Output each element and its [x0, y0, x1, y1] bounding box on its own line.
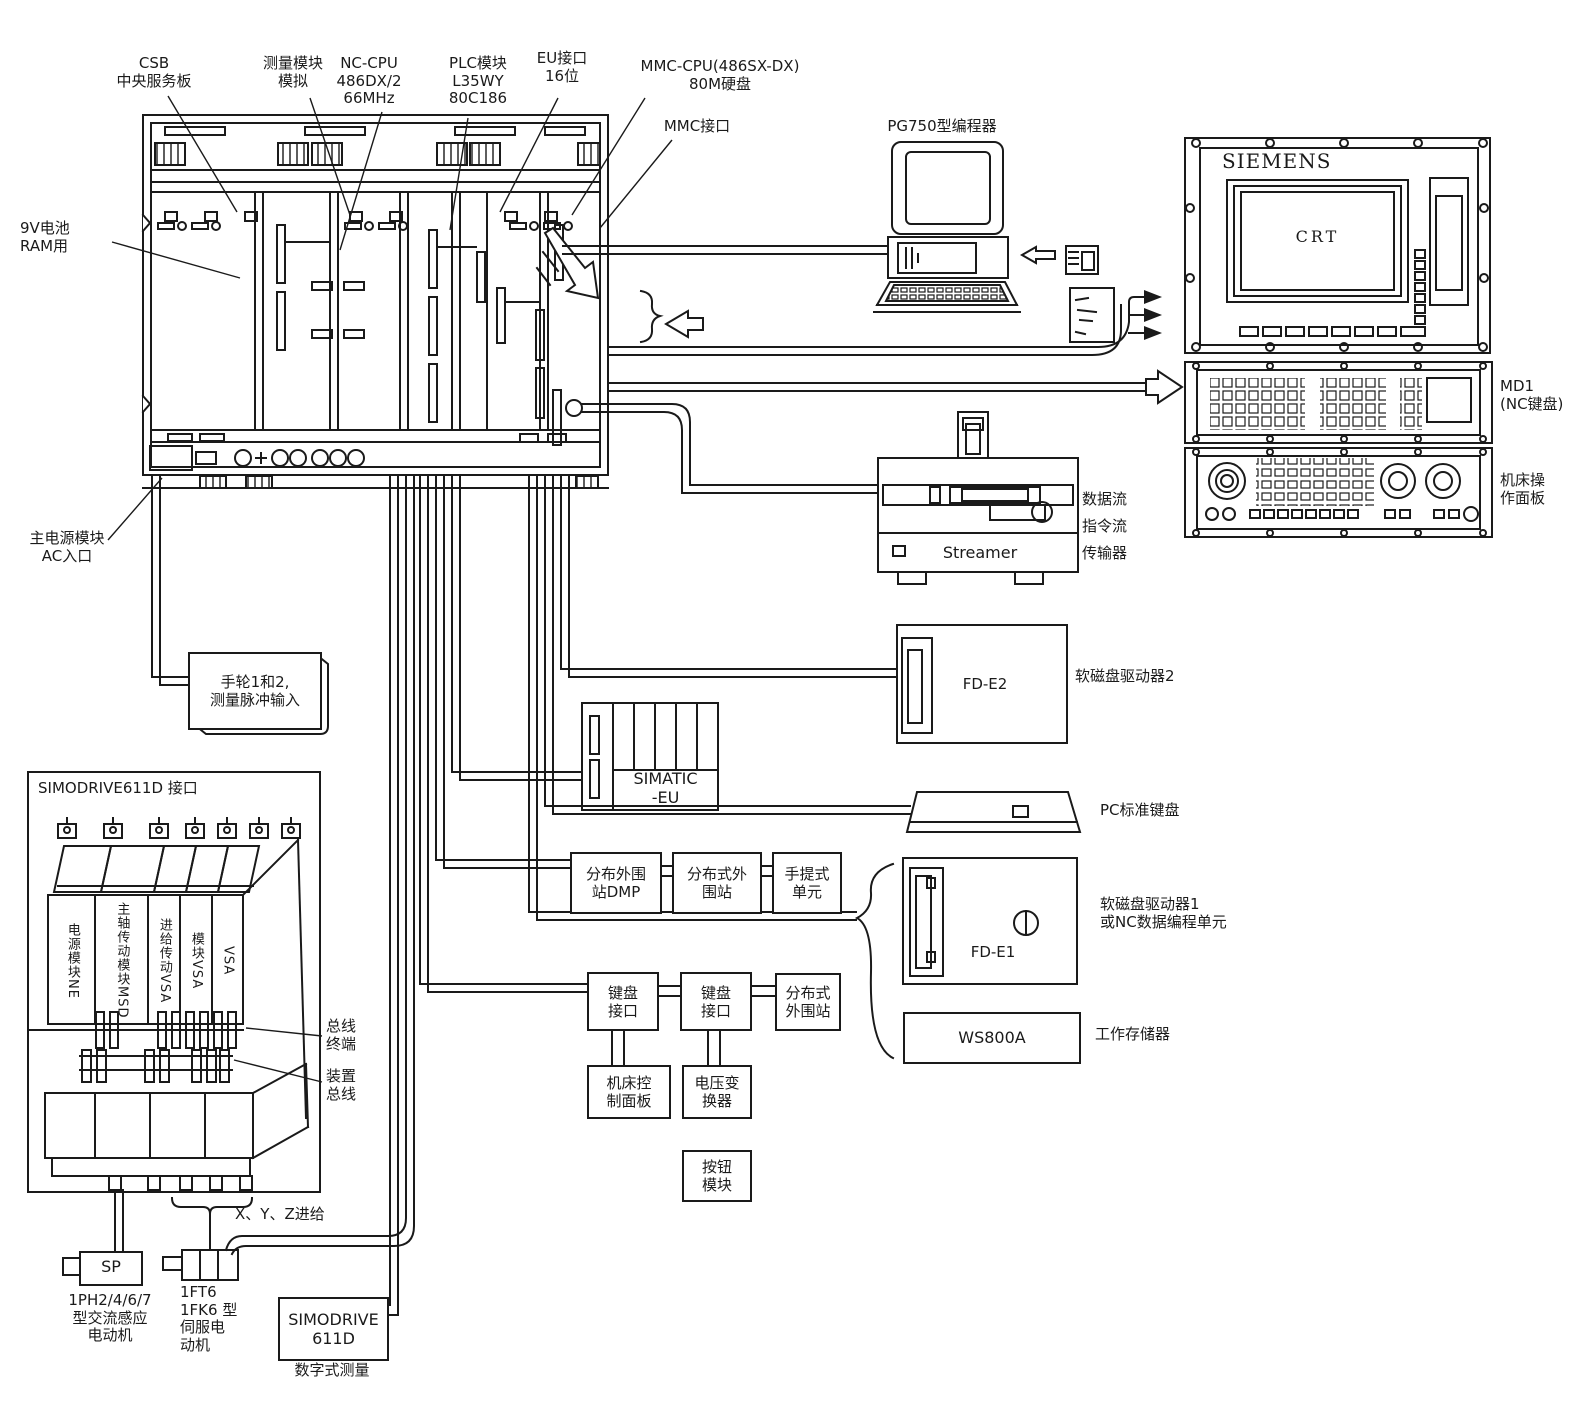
label-spindle-module-msd: 主轴传动模块MSD	[98, 900, 145, 1020]
callout-plc-module: PLC模块 L35WY 80C186	[436, 55, 520, 108]
right-arrow-icon	[1144, 326, 1162, 340]
box-dist-station-2: 分布式 外围站	[775, 973, 841, 1031]
box-machine-control-panel: 机床控 制面板	[587, 1065, 671, 1119]
callout-battery: 9V电池 RAM用	[20, 220, 100, 255]
box-keyboard-interface-1: 键盘 接口	[587, 972, 659, 1031]
label-feed-module-vsa: 进给传动VSA	[151, 900, 177, 1022]
label-simodrive-interface: SIMODRIVE611D 接口	[38, 780, 258, 798]
callout-eu-interface: EU接口 16位	[524, 50, 600, 85]
label-power-module-ne: 电源模块NE	[52, 905, 92, 1017]
pc-keyboard-device	[907, 792, 1080, 832]
callout-csb: CSB 中央服务板	[112, 55, 196, 90]
label-module-vsa: 模块VSA	[183, 900, 209, 1022]
pg750-computer	[874, 142, 1020, 312]
label-bus-terminal: 总线 终端	[326, 1018, 372, 1053]
right-arrow-icon	[1144, 308, 1162, 322]
box-button-module: 按钮 模块	[682, 1150, 752, 1202]
md1-keyboard	[1185, 362, 1492, 443]
label-xyz-feed: X、Y、Z进给	[235, 1206, 365, 1224]
label-fd-e2: FD-E2	[950, 676, 1020, 694]
label-device-bus: 装置 总线	[326, 1068, 372, 1103]
machine-operator-panel	[1185, 448, 1492, 537]
label-floppy-drive1: 软磁盘驱动器1 或NC数据编程单元	[1100, 896, 1275, 931]
open-left-arrow-icon	[1022, 247, 1055, 263]
box-simodrive-611d: SIMODRIVE 611D	[278, 1297, 389, 1361]
label-md1: MD1 (NC键盘)	[1500, 378, 1592, 413]
label-fd-e1: FD-E1	[958, 944, 1028, 962]
label-digital-measure: 数字式测量	[272, 1362, 392, 1380]
floppy-icon	[1066, 246, 1098, 274]
callout-mmc-cpu: MMC-CPU(486SX-DX) 80M硬盘	[615, 58, 825, 93]
open-left-arrow-icon	[666, 311, 703, 337]
label-floppy-drive2: 软磁盘驱动器2	[1075, 668, 1215, 686]
crt-screen-label: CRT	[1280, 228, 1355, 247]
box-dist-station: 分布式外 围站	[672, 852, 762, 914]
open-right-arrow-icon	[1146, 371, 1182, 403]
label-pc-keyboard: PC标准键盘	[1100, 802, 1230, 820]
brand-siemens: SIEMENS	[1222, 150, 1352, 174]
box-voltage-converter: 电压变 换器	[682, 1065, 752, 1119]
label-vsa: VSA	[215, 900, 240, 1022]
label-simatic-eu: SIMATIC -EU	[615, 770, 716, 808]
label-streamer: Streamer	[938, 544, 1022, 563]
label-data-flow: 数据流 指令流 传输器	[1082, 486, 1146, 567]
icon-arrows	[641, 246, 1182, 403]
callout-nc-cpu: NC-CPU 486DX/2 66MHz	[325, 55, 413, 108]
callout-mmc-interface: MMC接口	[652, 118, 742, 136]
label-pg750: PG750型编程器	[872, 118, 1012, 136]
box-handheld-unit: 手提式 单元	[772, 852, 842, 914]
system-architecture-diagram: CSB 中央服务板 测量模块 模拟 NC-CPU 486DX/2 66MHz P…	[0, 0, 1595, 1420]
label-sp-motor: SP	[80, 1258, 142, 1277]
box-keyboard-interface-2: 键盘 接口	[680, 972, 752, 1031]
label-work-memory: 工作存储器	[1095, 1026, 1215, 1044]
box-handwheel: 手轮1和2, 测量脉冲输入	[188, 652, 322, 730]
right-arrow-icon	[1144, 290, 1162, 304]
callout-power-entry: 主电源模块 AC入口	[8, 530, 126, 565]
box-ws800a: WS800A	[903, 1012, 1081, 1064]
box-dmp-station: 分布外围 站DMP	[570, 852, 662, 914]
label-machine-panel: 机床操 作面板	[1500, 472, 1570, 507]
document-icon	[1070, 288, 1114, 342]
brace-icon	[641, 291, 660, 342]
label-servo-motor: 1FT6 1FK6 型 伺服电 动机	[180, 1284, 260, 1355]
fd-e1-drive	[903, 858, 1077, 984]
label-ac-motor: 1PH2/4/6/7 型交流感应 电动机	[52, 1292, 168, 1345]
